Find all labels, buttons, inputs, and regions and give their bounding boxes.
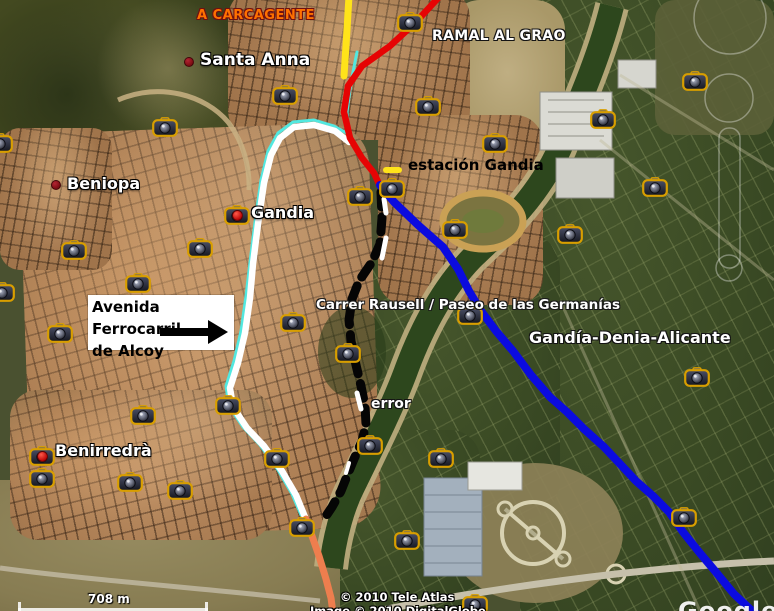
photo-camera-icon[interactable] bbox=[428, 448, 454, 468]
satellite-map[interactable]: Santa AnnaBeniopaGandiaBenirredràA CARCA… bbox=[0, 0, 774, 611]
photo-camera-icon[interactable] bbox=[167, 480, 193, 500]
photo-camera-icon[interactable] bbox=[590, 109, 616, 129]
place-red-dot[interactable] bbox=[37, 451, 48, 462]
place-label-santa-anna[interactable]: Santa Anna bbox=[200, 50, 310, 70]
route-label-carrer-rausell: Carrer Rausell / Paseo de las Germanías bbox=[316, 297, 620, 313]
google-watermark: Google bbox=[678, 597, 774, 611]
arrow-shaft bbox=[160, 328, 210, 336]
attribution-tele-atlas: © 2010 Tele Atlas bbox=[340, 590, 454, 604]
photo-camera-icon[interactable] bbox=[187, 238, 213, 258]
scale-bar bbox=[18, 604, 208, 611]
place-label-beniopa[interactable]: Beniopa bbox=[67, 174, 140, 193]
photo-camera-icon[interactable] bbox=[61, 240, 87, 260]
photo-camera-icon[interactable] bbox=[557, 224, 583, 244]
photo-camera-icon[interactable] bbox=[415, 96, 441, 116]
photo-camera-icon[interactable] bbox=[335, 343, 361, 363]
photo-camera-icon[interactable] bbox=[642, 177, 668, 197]
route-label-error: error bbox=[371, 396, 411, 412]
photo-camera-icon[interactable] bbox=[47, 323, 73, 343]
photo-camera-icon[interactable] bbox=[671, 507, 697, 527]
photo-camera-icon[interactable] bbox=[482, 133, 508, 153]
photo-camera-icon[interactable] bbox=[0, 133, 13, 153]
photo-camera-icon[interactable] bbox=[394, 530, 420, 550]
photo-camera-icon[interactable] bbox=[152, 117, 178, 137]
route-label-ramal-al-grao: RAMAL AL GRAO bbox=[432, 28, 566, 44]
place-label-benirredra[interactable]: Benirredrà bbox=[55, 441, 152, 460]
place-label-gandia[interactable]: Gandia bbox=[251, 203, 314, 222]
photo-camera-icon[interactable] bbox=[442, 219, 468, 239]
photo-camera-icon[interactable] bbox=[682, 71, 708, 91]
route-label-gandia-denia-alicante: Gandía-Denia-Alicante bbox=[529, 328, 731, 347]
photo-camera-icon[interactable] bbox=[347, 186, 373, 206]
photo-camera-icon[interactable] bbox=[130, 405, 156, 425]
photo-camera-icon[interactable] bbox=[289, 517, 315, 537]
photo-camera-icon[interactable] bbox=[224, 205, 250, 225]
photo-camera-icon[interactable] bbox=[29, 468, 55, 488]
photo-camera-icon[interactable] bbox=[0, 282, 15, 302]
attribution-digitalglobe: Image © 2010 DigitalGlobe bbox=[310, 604, 486, 611]
photo-camera-icon[interactable] bbox=[684, 367, 710, 387]
route-label-a-carcagente: A CARCAGENTE bbox=[197, 8, 315, 23]
photo-camera-icon[interactable] bbox=[280, 312, 306, 332]
arrow-right-icon bbox=[208, 320, 228, 344]
photo-camera-icon[interactable] bbox=[357, 435, 383, 455]
route-label-estacion-gandia: estación Gandia bbox=[408, 156, 544, 174]
photo-camera-icon[interactable] bbox=[397, 12, 423, 32]
beniopa-dot[interactable] bbox=[51, 180, 61, 190]
place-red-dot[interactable] bbox=[232, 210, 243, 221]
santa-anna-dot[interactable] bbox=[184, 57, 194, 67]
photo-camera-icon[interactable] bbox=[272, 85, 298, 105]
photo-camera-icon[interactable] bbox=[125, 273, 151, 293]
photo-camera-icon[interactable] bbox=[264, 448, 290, 468]
photo-camera-icon[interactable] bbox=[29, 446, 55, 466]
photo-camera-icon[interactable] bbox=[117, 472, 143, 492]
photo-camera-icon[interactable] bbox=[379, 178, 405, 198]
avenida-info-box: Avenida Ferrocarril de Alcoy bbox=[88, 295, 234, 350]
photo-camera-icon[interactable] bbox=[215, 395, 241, 415]
